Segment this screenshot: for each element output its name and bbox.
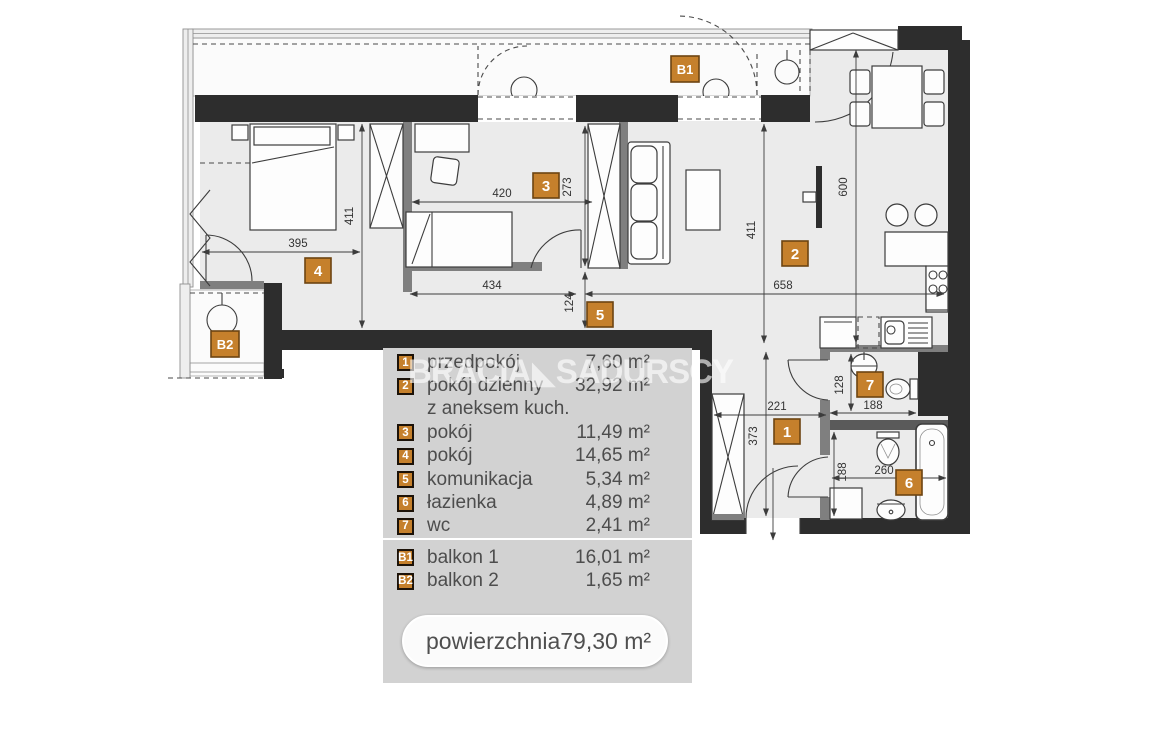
- room-label: przedpokój: [427, 352, 586, 374]
- legend-badge: 3: [397, 424, 414, 441]
- room-area: 4,89 m²: [586, 492, 650, 514]
- legend-badge: 7: [397, 518, 414, 535]
- legend-badge: 4: [397, 448, 414, 465]
- toilet-icon: [877, 432, 899, 465]
- toilet-icon: [886, 379, 918, 399]
- dim-kitchen-depth: 600: [838, 177, 850, 196]
- room-label: komunikacja: [427, 469, 586, 491]
- room-label-continuation: z aneksem kuch.: [427, 398, 650, 420]
- kitchen-sink-icon: [881, 317, 932, 348]
- legend-row: 2 pokój dzienny 32,92 m²: [383, 374, 692, 397]
- dim-living-depth: 411: [746, 221, 758, 239]
- badge-room-5: 5: [587, 302, 613, 327]
- legend-row: 1 przedpokój 7,60 m²: [383, 351, 692, 374]
- svg-text:4: 4: [314, 263, 323, 280]
- dim-hall-width: 221: [767, 401, 786, 413]
- legend-row: 5 komunikacja 5,34 m²: [383, 468, 692, 491]
- dim-room3-depth: 273: [562, 177, 574, 196]
- sofa-icon: [628, 142, 670, 264]
- room-area: 14,65 m²: [575, 445, 650, 467]
- dim-room4-width: 395: [288, 238, 307, 250]
- badge-room-4: 4: [305, 258, 331, 283]
- badge-room-7: 7: [857, 372, 883, 397]
- legend-rooms: 1 przedpokój 7,60 m² 2 pokój dzienny 32,…: [383, 348, 692, 538]
- single-bed-icon: [406, 212, 512, 267]
- legend-row: B1 balkon 1 16,01 m²: [383, 546, 692, 569]
- stool-icon: [915, 204, 937, 226]
- nightstand-icon: [232, 125, 248, 140]
- room-label: wc: [427, 515, 586, 537]
- stool-icon: [886, 204, 908, 226]
- svg-text:2: 2: [791, 246, 799, 263]
- total-area-label: powierzchnia: [426, 628, 560, 655]
- balcony-area: 16,01 m²: [575, 547, 650, 569]
- badge-balcony-2: B2: [211, 331, 239, 357]
- legend-badge: B1: [397, 549, 414, 566]
- legend-badge: 2: [397, 378, 414, 395]
- balcony-area: 1,65 m²: [586, 570, 650, 592]
- legend-row-continuation: z aneksem kuch.: [383, 398, 692, 421]
- room-label: pokój: [427, 445, 575, 467]
- svg-text:5: 5: [596, 307, 604, 324]
- total-area-value: 79,30 m²: [560, 628, 651, 655]
- badge-room-6: 6: [896, 470, 922, 495]
- dim-corridor-width: 434: [482, 280, 502, 292]
- dim-living-width: 658: [773, 280, 792, 292]
- dim-bath-depth: 188: [837, 462, 849, 481]
- dim-wc-depth: 128: [834, 375, 846, 394]
- dim-wc-width: 188: [863, 400, 882, 412]
- badge-room-1: 1: [774, 419, 800, 444]
- bath-cabinet-icon: [830, 488, 862, 519]
- badge-room-2: 2: [782, 241, 808, 266]
- dim-room3-width: 420: [492, 188, 511, 200]
- room-area: 11,49 m²: [576, 422, 650, 444]
- dim-room4-depth: 411: [344, 207, 356, 225]
- legend-row: 6 łazienka 4,89 m²: [383, 491, 692, 514]
- legend-row: B2 balkon 2 1,65 m²: [383, 569, 692, 592]
- bath-sink-icon: [877, 500, 905, 520]
- svg-text:B2: B2: [217, 337, 234, 352]
- room-area: 32,92 m²: [575, 375, 650, 397]
- balcony-label: balkon 2: [427, 570, 586, 592]
- svg-text:6: 6: [905, 475, 913, 492]
- legend-badge: 1: [397, 354, 414, 371]
- svg-text:7: 7: [866, 377, 874, 394]
- wardrobe-icon: [712, 394, 744, 520]
- legend-badge: 5: [397, 471, 414, 488]
- wardrobe-icon: [588, 124, 620, 268]
- room-area: 5,34 m²: [586, 469, 650, 491]
- legend-badge: 6: [397, 495, 414, 512]
- nightstand-icon: [338, 125, 354, 140]
- legend-row: 4 pokój 14,65 m²: [383, 445, 692, 468]
- badge-balcony-1: B1: [671, 56, 699, 82]
- svg-text:3: 3: [542, 178, 550, 195]
- desk-icon: [415, 124, 469, 152]
- room-label: pokój dzienny: [427, 375, 575, 397]
- dim-hall-depth: 373: [748, 426, 760, 445]
- dim-corridor-depth: 124: [564, 293, 576, 313]
- floorplan-page: 420 273 395 411 411 600 434 658 124 221 …: [0, 0, 1156, 753]
- balcony-label: balkon 1: [427, 547, 575, 569]
- legend-row: 7 wc 2,41 m²: [383, 515, 692, 538]
- total-area-pill: powierzchnia 79,30 m²: [402, 615, 668, 667]
- svg-text:1: 1: [783, 424, 791, 441]
- room-area: 2,41 m²: [586, 515, 650, 537]
- room-label: pokój: [427, 422, 576, 444]
- dim-bath-width: 260: [874, 465, 893, 477]
- room-area: 7,60 m²: [586, 352, 650, 374]
- legend-badge: B2: [397, 573, 414, 590]
- wardrobe-icon: [370, 124, 403, 228]
- coffee-table-icon: [686, 170, 720, 230]
- badge-room-3: 3: [533, 173, 559, 198]
- chair-icon: [430, 156, 459, 185]
- legend-row: 3 pokój 11,49 m²: [383, 421, 692, 444]
- svg-text:B1: B1: [677, 62, 694, 77]
- room-label: łazienka: [427, 492, 586, 514]
